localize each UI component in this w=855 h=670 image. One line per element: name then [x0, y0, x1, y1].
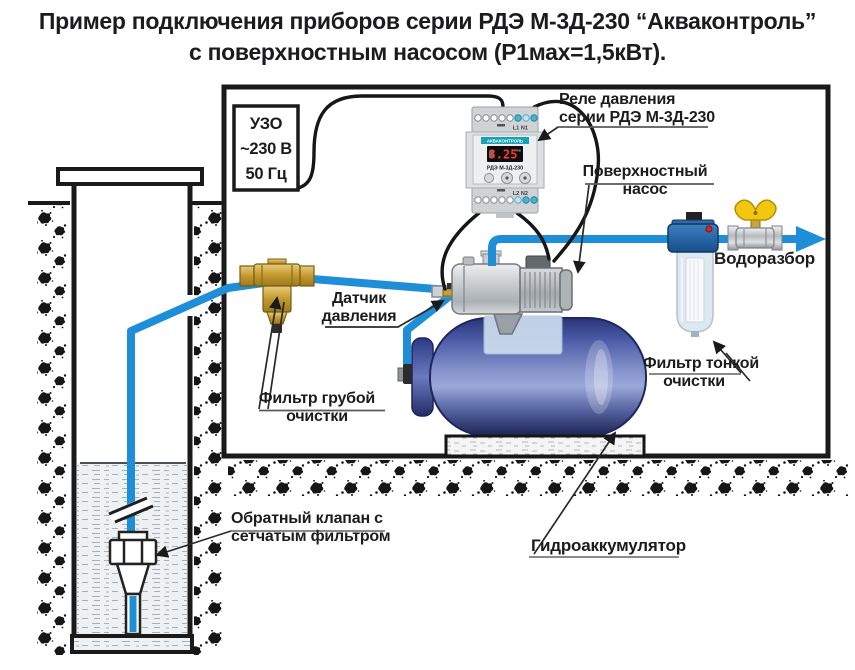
pump-callout-line2: насос	[577, 181, 713, 199]
uzo-line1: УЗО	[236, 112, 296, 137]
pressure-relay-device: АКВАКОНТРОЛЬ 3.25 bar РДЭ М-3Д-230 L1 N1…	[466, 107, 544, 218]
diagram-page: АКВАКОНТРОЛЬ 3.25 bar РДЭ М-3Д-230 L1 N1…	[0, 0, 855, 670]
title-line2: с поверхностным насосом (Р1мах=1,5кВт).	[0, 37, 855, 68]
pressure-sensor-callout: Датчик давления	[316, 290, 402, 326]
check-valve-line1: Обратный клапан с	[231, 510, 390, 528]
relay-model-text: РДЭ М-3Д-230	[487, 166, 523, 172]
sensor-callout-line2: давления	[316, 308, 402, 326]
uzo-line2: ~230 В	[236, 137, 296, 162]
relay-display-value: 3.25	[489, 148, 518, 162]
diagram-canvas: АКВАКОНТРОЛЬ 3.25 bar РДЭ М-3Д-230 L1 N1…	[0, 0, 855, 670]
relay-display-unit: bar	[516, 149, 522, 153]
title-line1: Пример подключения приборов серии РДЭ М-…	[0, 6, 855, 37]
tap-callout: Водоразбор	[714, 250, 815, 268]
coarse-filter-callout: Фильтр грубой очистки	[250, 390, 384, 426]
check-valve-callout: Обратный клапан с сетчатым фильтром	[231, 510, 390, 546]
motor	[520, 268, 562, 312]
coarse-filter-line1: Фильтр грубой	[250, 390, 384, 408]
surface-pump-callout: Поверхностный насос	[577, 163, 713, 199]
relay-brand-text: АКВАКОНТРОЛЬ	[487, 139, 523, 144]
relay-callout-line1: Реле давления	[559, 91, 715, 109]
fine-filter-line1: Фильтр тонкой	[643, 355, 745, 373]
fine-filter-line2: очистки	[643, 373, 745, 391]
fine-filter-callout: Фильтр тонкой очистки	[643, 355, 745, 391]
uzo-label: УЗО ~230 В 50 Гц	[236, 112, 296, 187]
sensor-callout-line1: Датчик	[316, 290, 402, 308]
relay-terminal-label-top: L1 N1	[513, 126, 528, 132]
page-title: Пример подключения приборов серии РДЭ М-…	[0, 6, 855, 68]
uzo-line3: 50 Гц	[236, 162, 296, 187]
concrete-base	[446, 436, 644, 456]
coarse-filter-line2: очистки	[250, 408, 384, 426]
relay-terminal-label-bottom: L2 N2	[513, 191, 528, 197]
well-cap	[58, 169, 202, 184]
check-valve-line2: сетчатым фильтром	[231, 528, 390, 546]
relay-callout: Реле давления серии РДЭ М-3Д-230	[559, 91, 715, 127]
relay-callout-line2: серии РДЭ М-3Д-230	[559, 109, 715, 127]
accumulator-callout: Гидроаккумулятор	[531, 537, 686, 555]
pump-callout-line1: Поверхностный	[577, 163, 713, 181]
